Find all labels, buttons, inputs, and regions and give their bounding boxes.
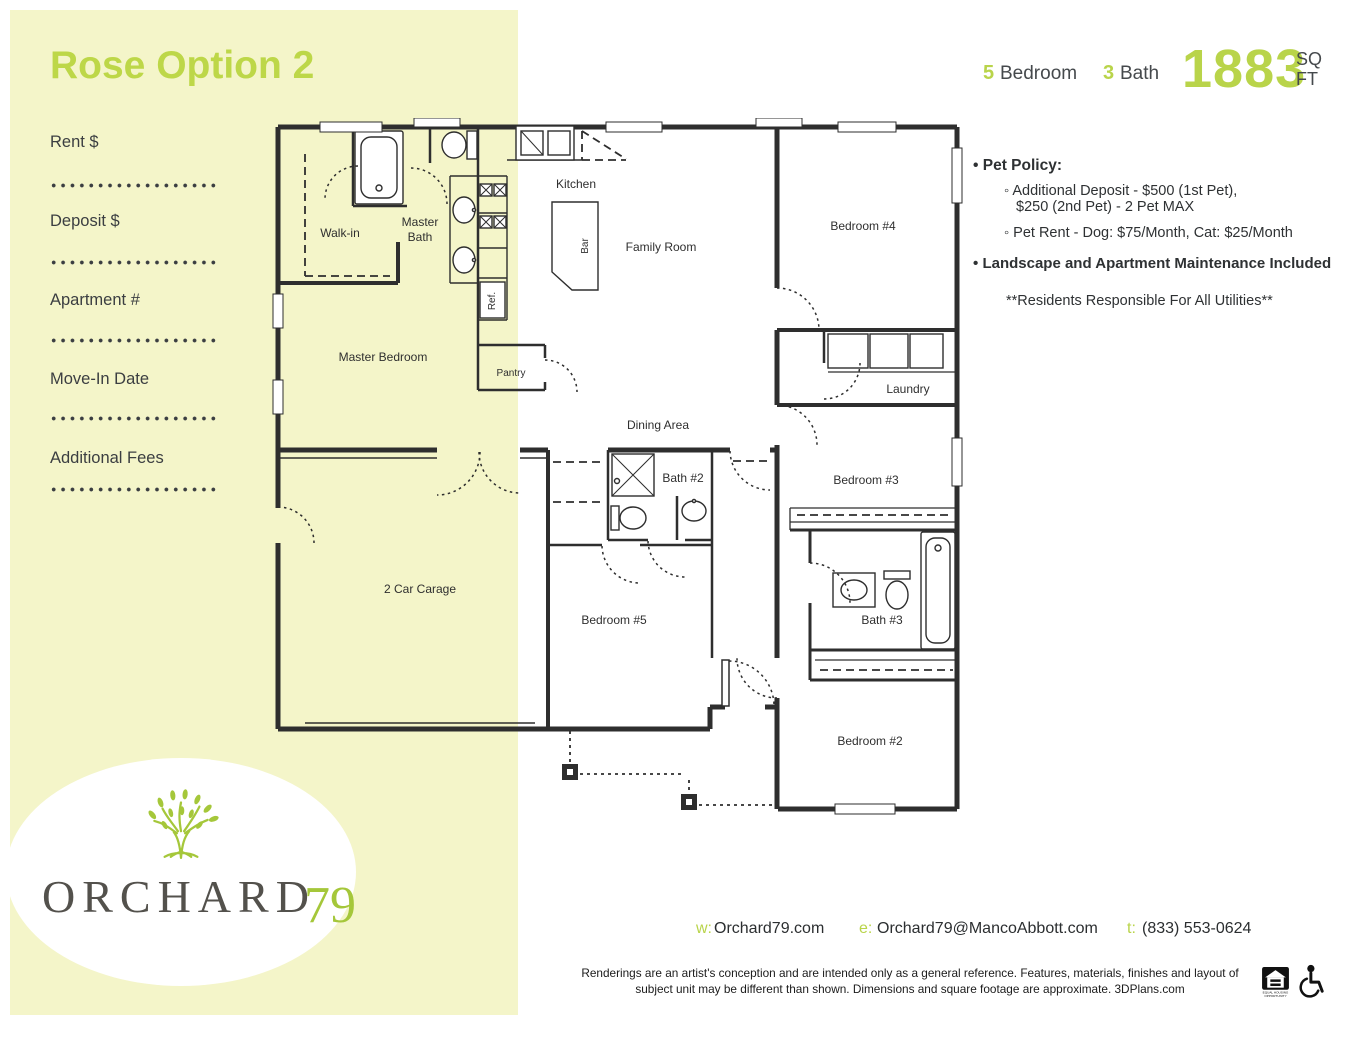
sub-bullet-icon: ◦ <box>1004 183 1009 199</box>
bullet-icon: • <box>973 255 978 272</box>
bath3-tub-inner <box>926 538 950 643</box>
deposit-fill-line <box>49 260 219 265</box>
bedroom-count: 5 <box>983 62 994 85</box>
room-label-garage: 2 Car Carage <box>384 582 456 596</box>
dryer <box>870 334 908 368</box>
tree-icon <box>140 786 222 860</box>
garage-hall-door-arc <box>479 452 519 493</box>
front-door-leaf <box>722 660 729 706</box>
phone-label: t: <box>1127 920 1136 938</box>
patio-path <box>562 731 776 810</box>
pantry-door-arc <box>545 360 577 392</box>
room-label-bath3: Bath #3 <box>861 613 903 627</box>
bedroom-label: Bedroom <box>1000 63 1077 85</box>
bed4-door-arc <box>777 288 819 330</box>
bath2-door-arc <box>648 541 685 577</box>
page-title: Rose Option 2 <box>50 44 314 88</box>
faucet-dot <box>472 208 475 211</box>
pet-policy-heading: • Pet Policy: <box>973 157 1343 175</box>
svg-text:OPPORTUNITY: OPPORTUNITY <box>1264 994 1286 998</box>
room-label-bedroom3: Bedroom #3 <box>833 473 899 487</box>
master-bedroom-door-arc <box>437 452 480 495</box>
room-label-bedroom4: Bedroom #4 <box>830 219 896 233</box>
room-label-kitchen: Kitchen <box>556 177 596 191</box>
sqft-value: 1883 <box>1182 38 1306 100</box>
room-label-dining: Dining Area <box>627 418 689 432</box>
disclaimer-line2: subject unit may be different than shown… <box>635 982 1184 996</box>
bed3-closet-lines <box>790 508 957 530</box>
laundry-cabinet <box>910 334 943 368</box>
floor-plan: Walk-in Master Bath Kitchen Family Room … <box>270 118 964 824</box>
landscape-note: • Landscape and Apartment Maintenance In… <box>973 255 1343 272</box>
logo-number: 79 <box>304 877 356 934</box>
bath-count: 3 <box>1103 62 1114 85</box>
logo-name: ORCHARD <box>42 871 316 922</box>
room-label-bedroom5: Bedroom #5 <box>581 613 647 627</box>
bath3-toilet-bowl <box>886 581 908 609</box>
room-label-bath2: Bath #2 <box>662 471 704 485</box>
bed5-closet-dashes <box>553 462 600 502</box>
faucet-dot <box>692 499 695 502</box>
master-toilet-tank <box>467 131 477 159</box>
field-label-rent: Rent $ <box>50 133 99 152</box>
bath3-sink <box>841 580 867 600</box>
accessibility-icon <box>1297 964 1327 998</box>
field-label-fees: Additional Fees <box>50 449 164 468</box>
room-label-pantry: Pantry <box>497 368 526 379</box>
movein-fill-line <box>49 416 219 421</box>
web-link[interactable]: Orchard79.com <box>714 920 824 938</box>
flyer-page: Rose Option 2 Rent $ Deposit $ Apartment… <box>0 0 1358 1042</box>
bath-label: Bath <box>1120 63 1159 85</box>
bar-island <box>552 202 598 290</box>
web-label: w: <box>696 920 712 938</box>
room-label-bedroom2: Bedroom #2 <box>837 734 903 748</box>
bath2-toilet-bowl <box>620 507 646 529</box>
master-tub-drain <box>376 185 382 191</box>
bath2-shower-head <box>615 479 620 484</box>
room-label-master-bath-1: Master <box>402 215 439 229</box>
sqft-unit-ft: FT <box>1296 69 1318 89</box>
washer <box>828 334 868 368</box>
disclaimer: Renderings are an artist's conception an… <box>560 966 1260 998</box>
garage-side-door-arc <box>278 507 314 543</box>
room-label-master-bedroom: Master Bedroom <box>339 350 428 364</box>
master-bath-door-arc <box>411 168 447 204</box>
logo-wordmark: ORCHARD79 <box>42 866 356 925</box>
details-block: • Pet Policy: ◦ Additional Deposit - $50… <box>973 157 1343 309</box>
sub-bullet-icon: ◦ <box>1004 225 1009 241</box>
field-label-movein: Move-In Date <box>50 370 149 389</box>
rent-fill-line <box>49 183 219 188</box>
field-label-deposit: Deposit $ <box>50 212 120 231</box>
room-label-laundry: Laundry <box>886 382 929 396</box>
bullet-icon: • <box>973 157 978 174</box>
equal-housing-icon: EQUAL HOUSING OPPORTUNITY <box>1262 967 1289 998</box>
room-label-bar: Bar <box>580 238 591 254</box>
bath2-sink <box>682 501 706 521</box>
apartment-fill-line <box>49 338 219 343</box>
disclaimer-line1: Renderings are an artist's conception an… <box>581 966 1238 980</box>
room-label-master-bath-2: Bath <box>408 230 433 244</box>
utilities-note: **Residents Responsible For All Utilitie… <box>1006 293 1343 309</box>
phone-link[interactable]: (833) 553-0624 <box>1142 920 1251 938</box>
kitchen-corner-dashes <box>582 131 626 160</box>
field-label-apartment: Apartment # <box>50 291 140 310</box>
email-label: e: <box>859 920 872 938</box>
room-label-walk-in: Walk-in <box>320 226 360 240</box>
bed3-door-arc <box>777 405 817 445</box>
email-link[interactable]: Orchard79@MancoAbbott.com <box>877 920 1098 938</box>
kitchen-sink-basin <box>548 131 570 155</box>
pet-deposit-line1: ◦ Additional Deposit - $500 (1st Pet), <box>1004 184 1343 200</box>
sqft-unit: SQ FT <box>1296 50 1322 90</box>
bath3-tub-drain <box>935 545 941 551</box>
pet-rent-line: ◦ Pet Rent - Dog: $75/Month, Cat: $25/Mo… <box>1004 226 1343 242</box>
bath3-toilet-tank <box>884 571 910 579</box>
master-toilet-bowl <box>442 132 466 158</box>
pet-deposit-line2: $250 (2nd Pet) - 2 Pet MAX <box>1016 200 1343 216</box>
front-door-arc <box>729 661 774 706</box>
room-label-family-room: Family Room <box>626 240 697 254</box>
sqft-unit-sq: SQ <box>1296 49 1322 69</box>
faucet-dot <box>472 258 475 261</box>
bath2-toilet-tank <box>611 506 619 530</box>
hall-opening-arc <box>730 451 770 490</box>
room-label-ref: Ref. <box>487 292 498 310</box>
fees-fill-line <box>49 487 219 492</box>
bed5-door-arc <box>602 546 640 583</box>
